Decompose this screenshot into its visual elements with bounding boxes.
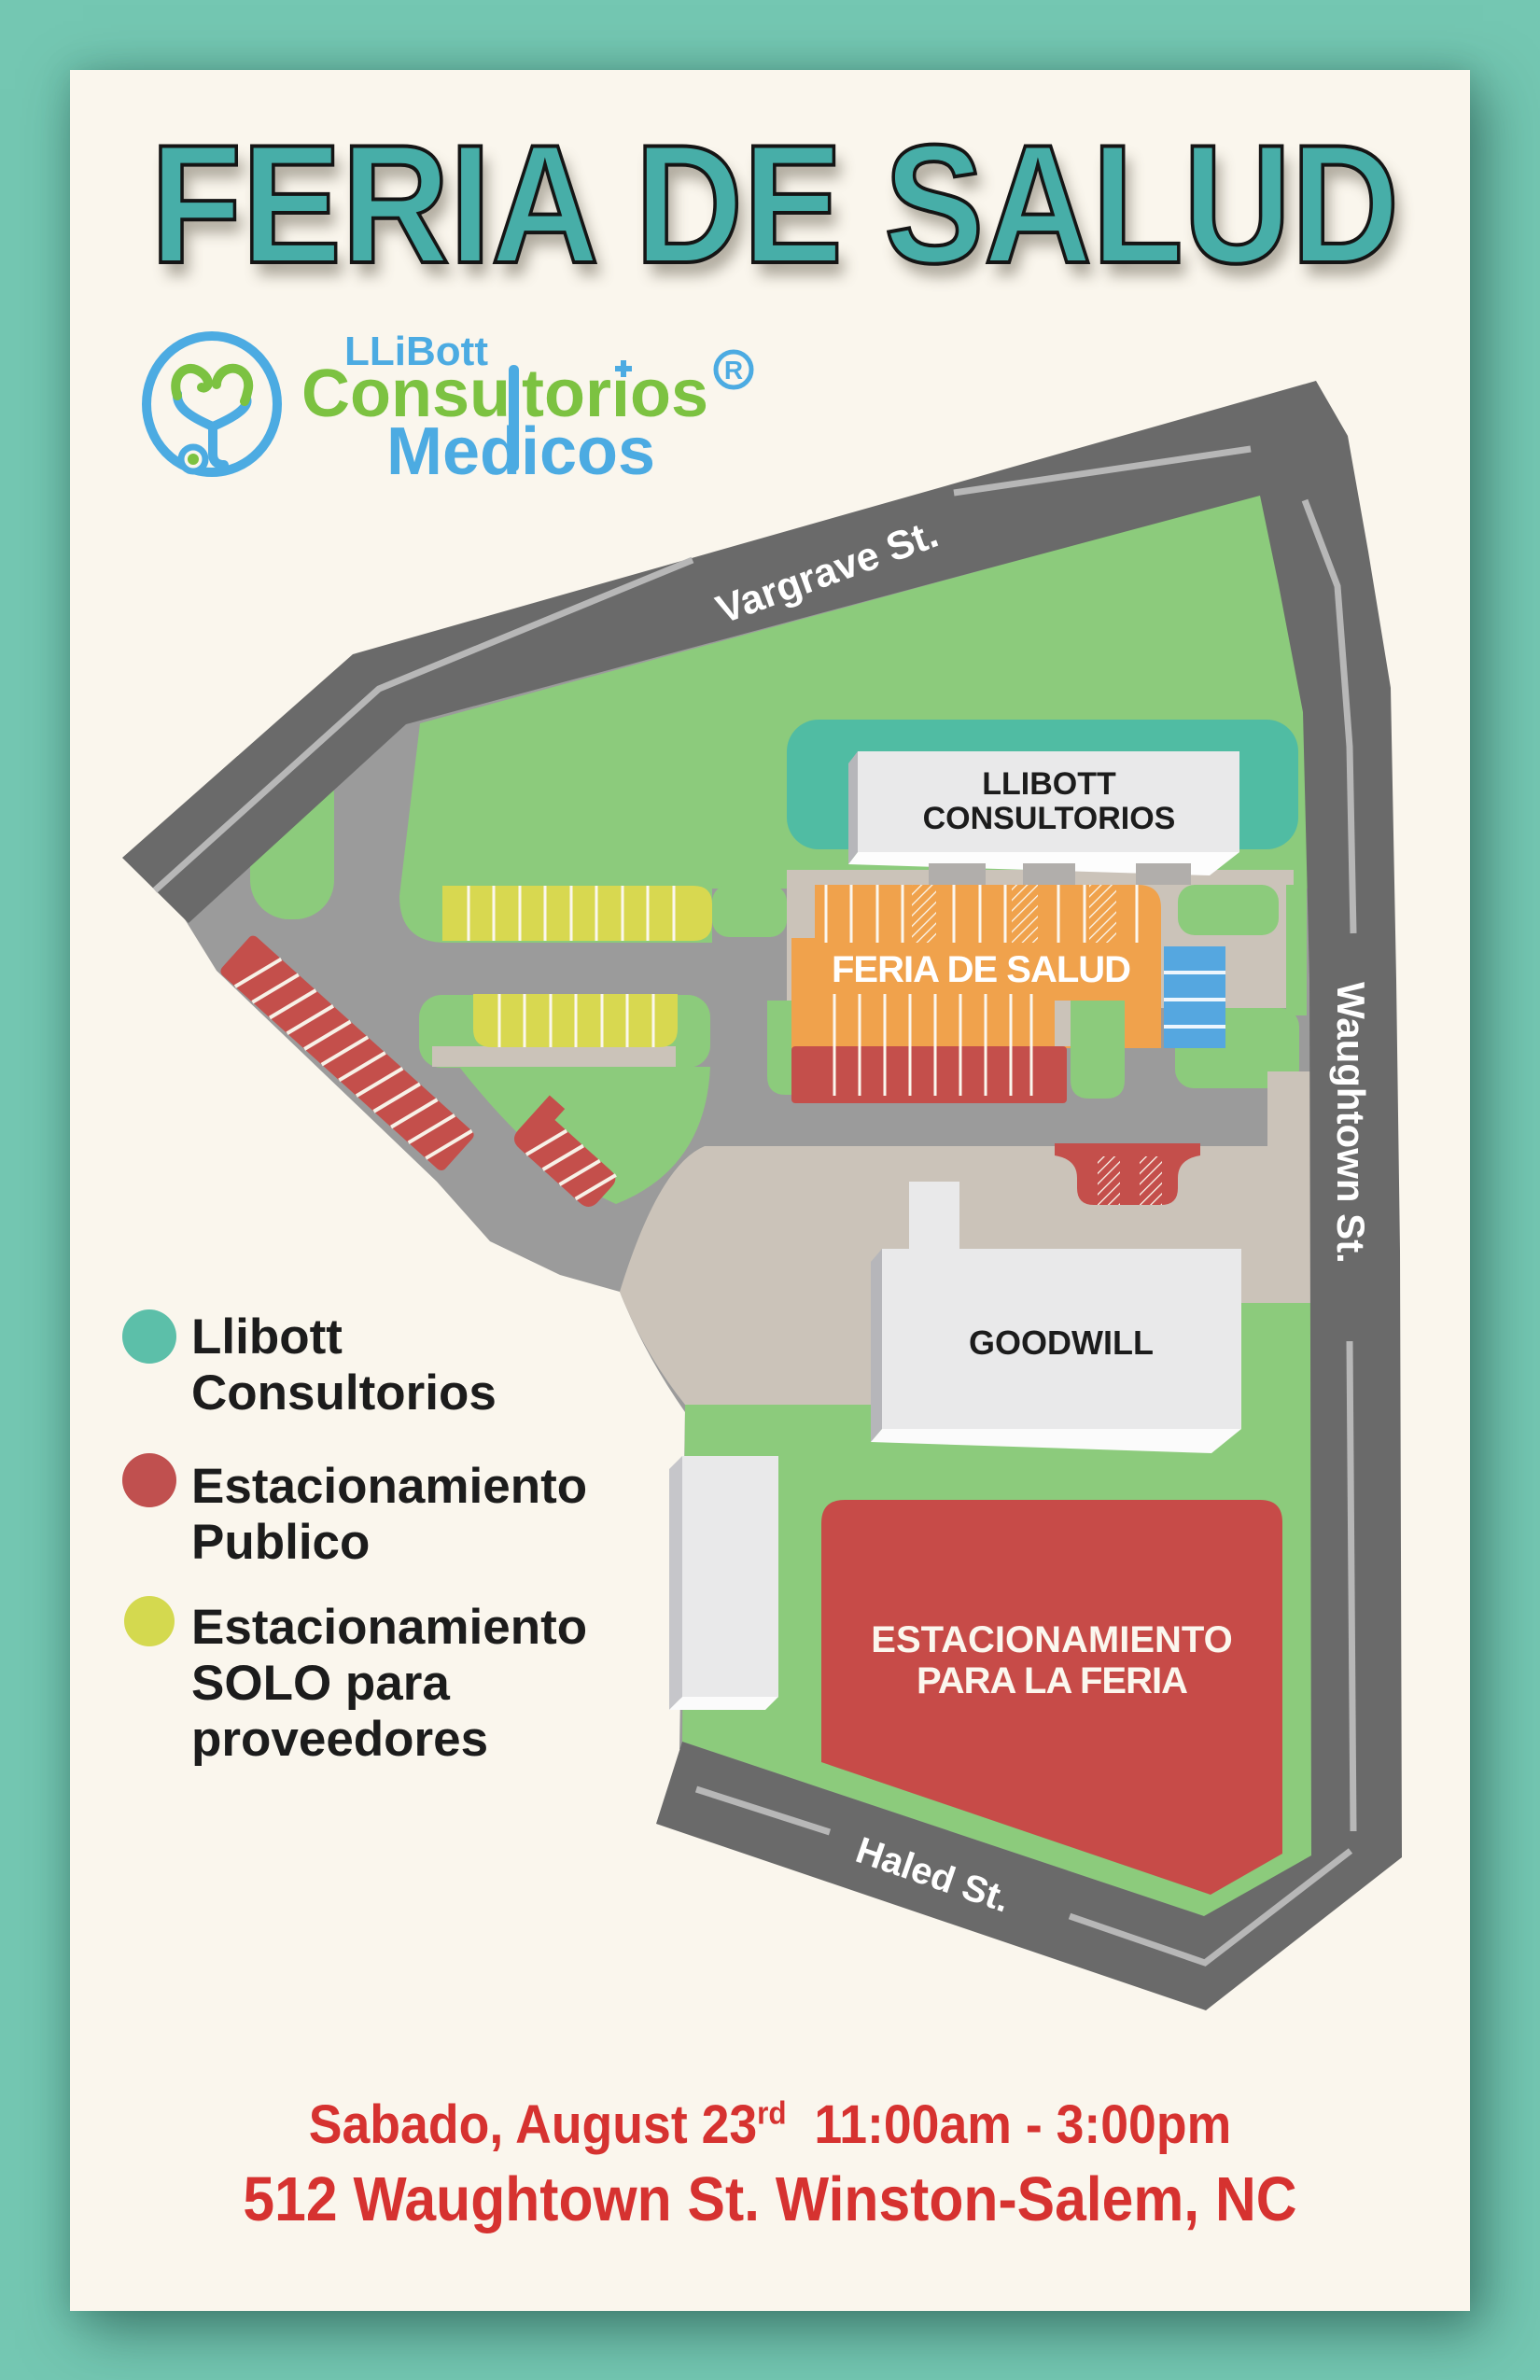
svg-text:Consultorios: Consultorios bbox=[191, 1365, 497, 1421]
svg-text:dicos: dicos bbox=[480, 414, 655, 489]
svg-text:SOLO para: SOLO para bbox=[191, 1656, 450, 1711]
svg-text:Me: Me bbox=[386, 414, 480, 489]
svg-text:Llibott: Llibott bbox=[191, 1309, 343, 1365]
svg-text:FERIA DE SALUD: FERIA DE SALUD bbox=[832, 949, 1130, 990]
svg-text:ESTACIONAMIENTO: ESTACIONAMIENTO bbox=[871, 1619, 1232, 1660]
svg-text:Estacionamiento: Estacionamiento bbox=[191, 1459, 587, 1514]
svg-text:CONSULTORIOS: CONSULTORIOS bbox=[923, 801, 1176, 836]
svg-text:Waughtown St.: Waughtown St. bbox=[1329, 982, 1373, 1264]
svg-text:R: R bbox=[724, 356, 743, 385]
svg-text:PARA LA FERIA: PARA LA FERIA bbox=[917, 1660, 1187, 1701]
svg-text:GOODWILL: GOODWILL bbox=[969, 1323, 1154, 1362]
svg-text:Publico: Publico bbox=[191, 1515, 370, 1570]
svg-text:Estacionamiento: Estacionamiento bbox=[191, 1600, 587, 1655]
svg-text:proveedores: proveedores bbox=[191, 1712, 488, 1767]
svg-text:LLIBOTT: LLIBOTT bbox=[982, 766, 1116, 802]
